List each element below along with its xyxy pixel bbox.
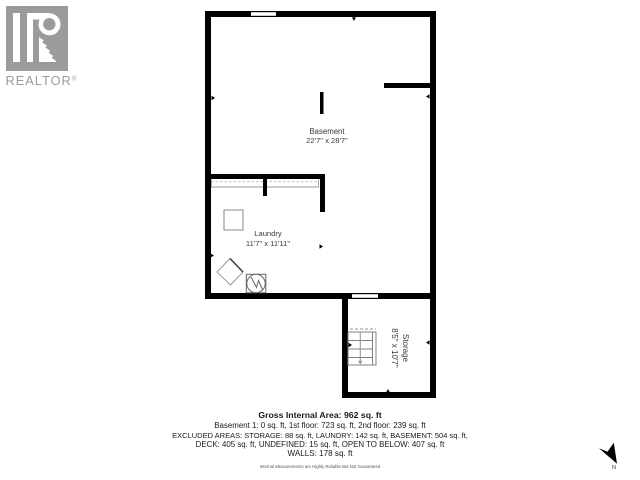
svg-text:N: N <box>612 465 616 471</box>
